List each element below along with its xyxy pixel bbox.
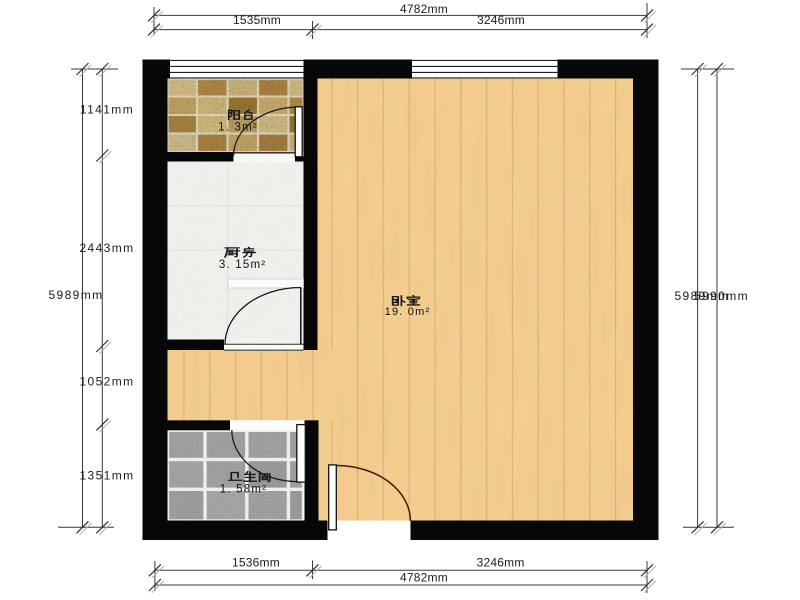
svg-text:5990mm: 5990mm	[694, 289, 749, 303]
svg-text:19. 0m²: 19. 0m²	[385, 306, 431, 318]
svg-text:1535mm: 1535mm	[233, 13, 281, 27]
svg-text:3246mm: 3246mm	[477, 556, 525, 570]
svg-text:1351mm: 1351mm	[79, 469, 134, 483]
svg-text:3246mm: 3246mm	[477, 13, 525, 27]
svg-text:4782mm: 4782mm	[400, 571, 448, 585]
svg-text:1. 3m²: 1. 3m²	[218, 122, 258, 134]
svg-text:2443mm: 2443mm	[79, 241, 134, 255]
svg-text:5989mm: 5989mm	[48, 288, 103, 302]
svg-text:1. 58m²: 1. 58m²	[220, 484, 267, 496]
svg-text:4782mm: 4782mm	[400, 2, 448, 16]
svg-text:1141mm: 1141mm	[80, 103, 134, 117]
svg-text:1052mm: 1052mm	[79, 375, 134, 389]
svg-text:3. 15m²: 3. 15m²	[219, 259, 266, 271]
svg-text:1536mm: 1536mm	[232, 556, 280, 570]
